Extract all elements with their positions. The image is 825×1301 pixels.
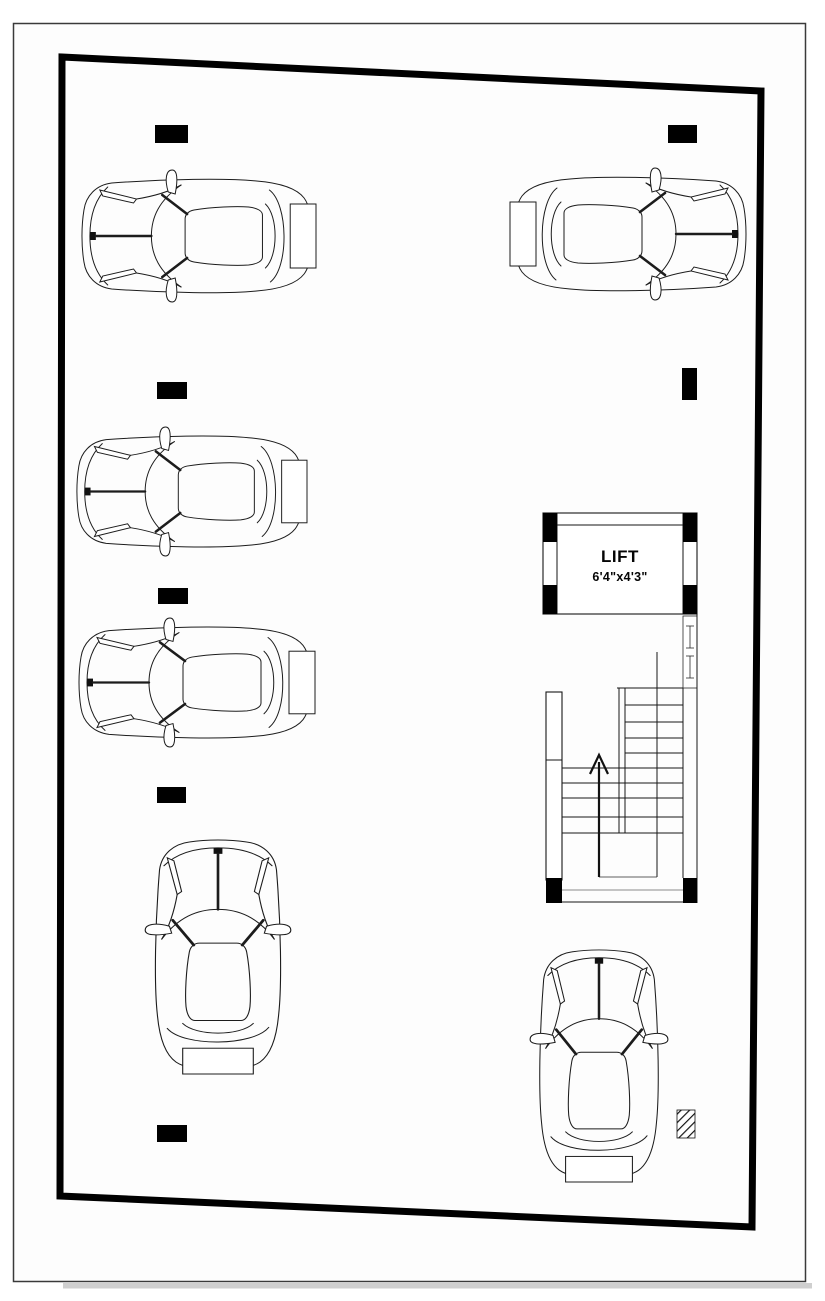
column-marker — [543, 585, 557, 614]
column-marker — [683, 585, 697, 614]
lift-dimensions: 6'4"x4'3" — [592, 570, 647, 584]
hatched-wall-section — [677, 1110, 695, 1138]
duct-shaft — [683, 616, 697, 688]
column-marker — [683, 878, 697, 903]
column-marker — [546, 878, 562, 903]
column-marker — [157, 787, 186, 803]
column-marker — [157, 1125, 187, 1142]
lift: LIFT 6'4"x4'3" — [543, 513, 697, 614]
column-marker — [157, 382, 187, 399]
column-marker — [543, 513, 557, 542]
column-marker — [155, 125, 188, 143]
column-marker — [683, 513, 697, 542]
column-marker — [158, 588, 188, 604]
floor-plan-drawing: LIFT 6'4"x4'3" — [0, 0, 825, 1301]
plan-sheet: LIFT 6'4"x4'3" — [0, 0, 825, 1301]
column-marker — [682, 368, 697, 400]
paper-shadow — [63, 1283, 812, 1289]
stair-left-wall — [546, 692, 562, 880]
column-marker — [668, 125, 697, 143]
lift-label: LIFT — [601, 547, 639, 566]
